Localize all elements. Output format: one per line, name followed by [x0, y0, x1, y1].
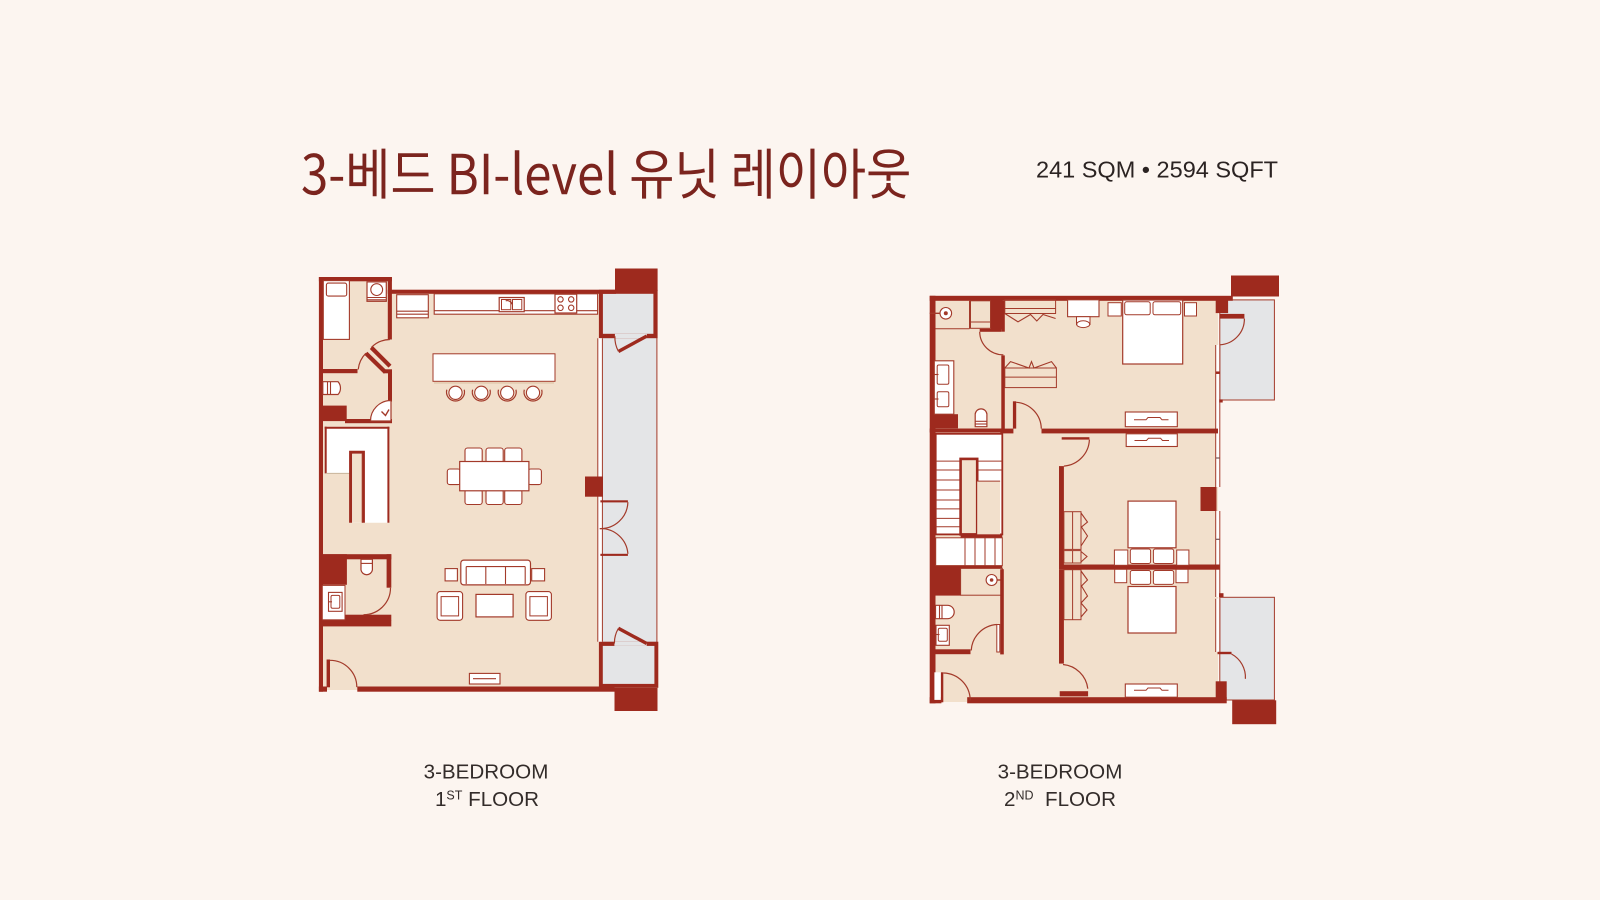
svg-text:3-BEDROOM: 3-BEDROOM: [998, 760, 1123, 783]
svg-text:241 SQM • 2594 SQFT: 241 SQM • 2594 SQFT: [1036, 157, 1278, 183]
svg-text:3-BEDROOM: 3-BEDROOM: [424, 760, 549, 783]
